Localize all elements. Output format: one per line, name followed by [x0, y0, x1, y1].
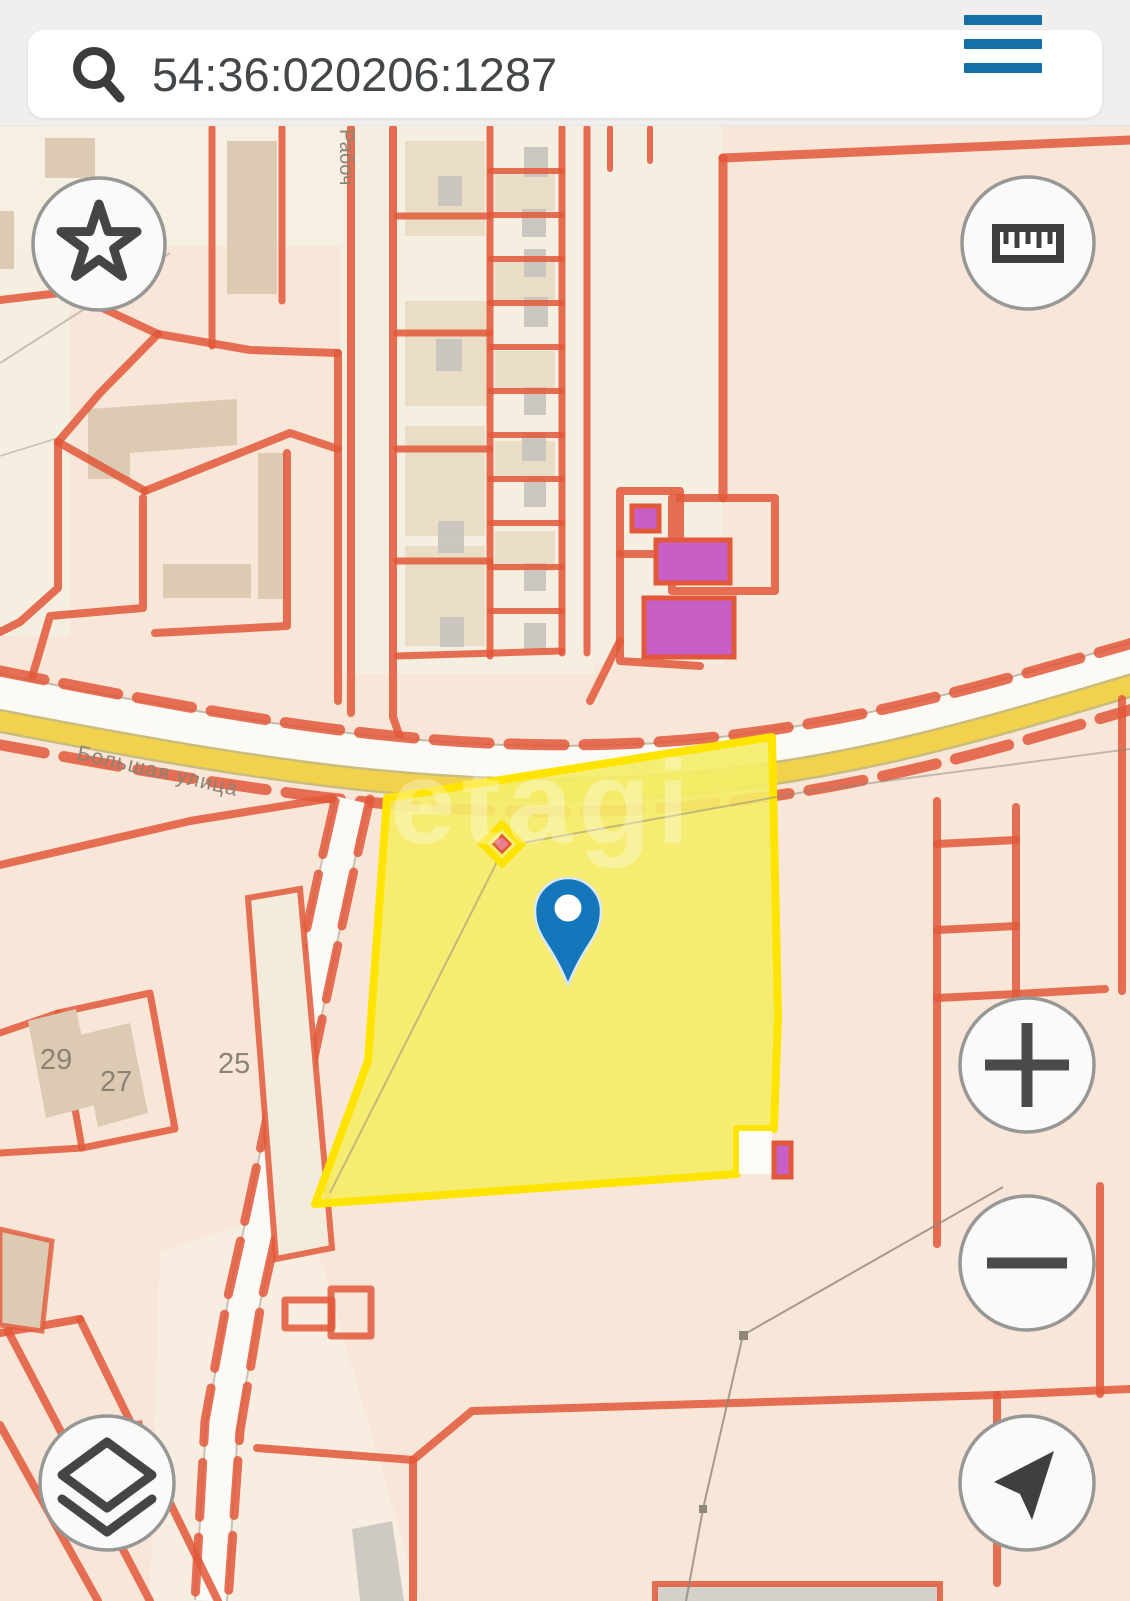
map-canvas[interactable]: etagi Большая улица Рабоч 29 27 25 — [0, 126, 1130, 1601]
top-bar: 54:36:020206:1287 — [0, 0, 1130, 126]
house-number-27: 27 — [100, 1066, 132, 1098]
menu-bar-icon — [964, 15, 1042, 25]
search-bar[interactable]: 54:36:020206:1287 — [28, 30, 1102, 118]
house-number-29: 29 — [40, 1044, 72, 1076]
favorite-button[interactable] — [33, 178, 165, 310]
measure-button[interactable] — [962, 177, 1094, 309]
locate-button[interactable] — [960, 1416, 1094, 1550]
zoom-in-button[interactable] — [960, 998, 1094, 1132]
menu-button[interactable] — [964, 15, 1042, 73]
ruler-icon — [996, 228, 1060, 259]
search-input[interactable]: 54:36:020206:1287 — [152, 47, 1102, 102]
watermark-text: etagi — [390, 737, 695, 869]
parcel-notch — [739, 1131, 772, 1174]
zoom-out-button[interactable] — [960, 1196, 1094, 1330]
house-number-25: 25 — [218, 1048, 250, 1080]
search-icon — [70, 44, 128, 104]
menu-bar-icon — [964, 39, 1042, 49]
small-magenta-building — [774, 1143, 791, 1177]
layers-button[interactable] — [40, 1416, 174, 1550]
menu-bar-icon — [964, 63, 1042, 73]
street-label-side: Рабоч — [335, 129, 357, 185]
cadastral-map[interactable]: etagi Большая улица Рабоч 29 27 25 — [0, 126, 1130, 1601]
